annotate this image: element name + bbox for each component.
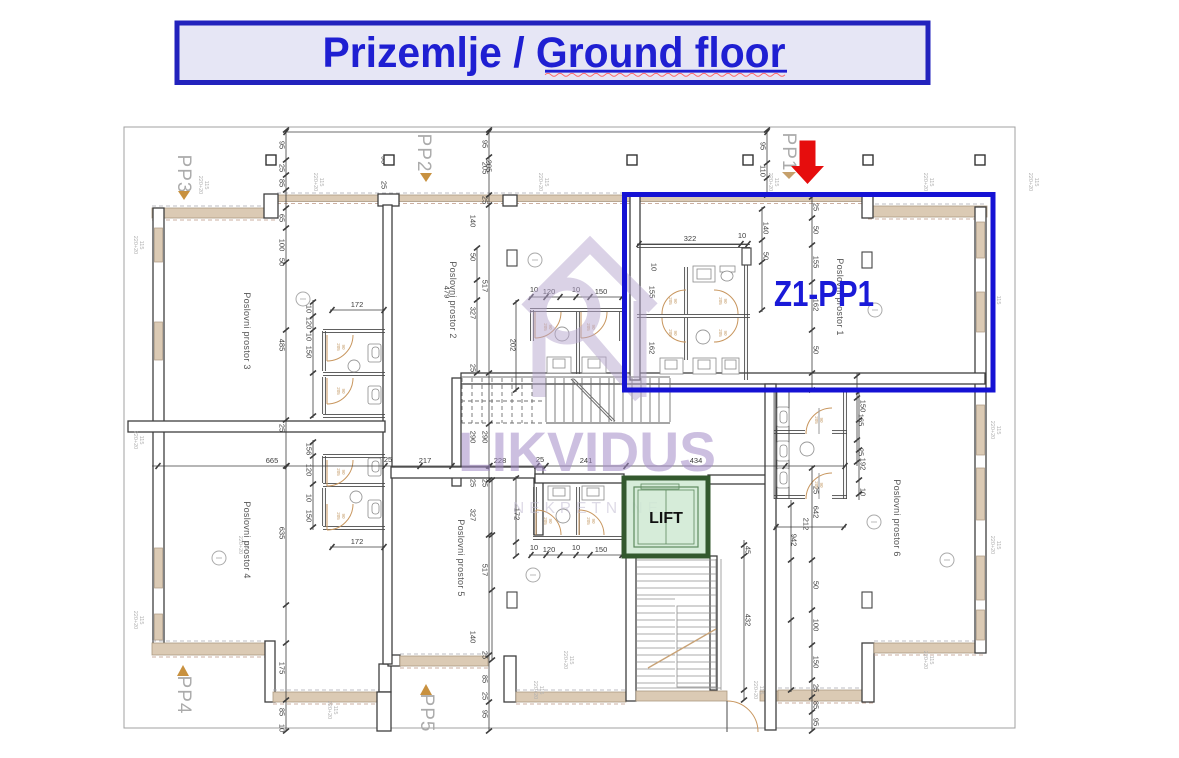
svg-text:635: 635 bbox=[278, 527, 287, 540]
svg-text:10: 10 bbox=[530, 543, 538, 552]
svg-text:Poslovni prostor 2: Poslovni prostor 2 bbox=[448, 261, 458, 338]
svg-text:25: 25 bbox=[384, 455, 392, 464]
svg-text:175: 175 bbox=[278, 662, 287, 675]
svg-text:205: 205 bbox=[336, 512, 341, 520]
svg-text:205: 205 bbox=[668, 297, 673, 305]
svg-text:50: 50 bbox=[812, 226, 821, 234]
svg-text:217: 217 bbox=[419, 456, 432, 465]
svg-text:172: 172 bbox=[351, 300, 364, 309]
svg-text:PP3: PP3 bbox=[173, 155, 194, 194]
svg-text:25: 25 bbox=[812, 684, 821, 692]
svg-text:25: 25 bbox=[481, 196, 490, 204]
svg-text:205: 205 bbox=[336, 343, 341, 351]
svg-text:642: 642 bbox=[812, 506, 821, 519]
svg-text:10: 10 bbox=[859, 488, 868, 496]
svg-text:Poslovni prostor 4: Poslovni prostor 4 bbox=[242, 501, 252, 578]
svg-text:140: 140 bbox=[469, 631, 478, 644]
svg-text:205: 205 bbox=[586, 517, 591, 525]
svg-text:85: 85 bbox=[481, 675, 490, 683]
svg-text:25: 25 bbox=[812, 203, 821, 211]
svg-text:205: 205 bbox=[336, 468, 341, 476]
svg-text:165: 165 bbox=[857, 414, 866, 427]
svg-text:220+20: 220+20 bbox=[752, 681, 758, 700]
svg-text:Z1-PP1: Z1-PP1 bbox=[774, 273, 874, 314]
svg-text:25: 25 bbox=[380, 181, 389, 189]
svg-text:50: 50 bbox=[278, 258, 287, 266]
svg-text:205: 205 bbox=[668, 329, 673, 337]
svg-text:LIFT: LIFT bbox=[649, 510, 683, 527]
svg-text:150: 150 bbox=[305, 346, 314, 359]
svg-text:162: 162 bbox=[648, 342, 657, 355]
svg-text:50: 50 bbox=[469, 253, 478, 261]
svg-text:10: 10 bbox=[278, 724, 287, 732]
svg-text:202: 202 bbox=[509, 339, 518, 352]
svg-text:220+20: 220+20 bbox=[537, 173, 543, 192]
svg-text:220+20: 220+20 bbox=[326, 701, 332, 720]
svg-text:10: 10 bbox=[305, 494, 314, 502]
svg-text:50: 50 bbox=[762, 252, 771, 260]
svg-text:665: 665 bbox=[266, 456, 279, 465]
svg-text:10: 10 bbox=[572, 543, 580, 552]
svg-text:120: 120 bbox=[543, 545, 556, 554]
svg-text:140: 140 bbox=[762, 222, 771, 235]
svg-text:100: 100 bbox=[812, 619, 821, 632]
svg-text:432: 432 bbox=[744, 614, 753, 627]
svg-text:220+20: 220+20 bbox=[922, 173, 928, 192]
svg-text:Poslovni prostor 6: Poslovni prostor 6 bbox=[892, 479, 902, 556]
svg-text:Poslovni prostor 5: Poslovni prostor 5 bbox=[456, 519, 466, 596]
svg-text:PP4: PP4 bbox=[173, 676, 194, 715]
svg-text:172: 172 bbox=[351, 537, 364, 546]
svg-text:85: 85 bbox=[278, 708, 287, 716]
svg-text:100: 100 bbox=[278, 239, 287, 252]
svg-text:220+20: 220+20 bbox=[312, 173, 318, 192]
svg-text:205: 205 bbox=[543, 517, 548, 525]
svg-text:220+20: 220+20 bbox=[1027, 173, 1033, 192]
svg-text:95: 95 bbox=[481, 710, 490, 718]
svg-text:150: 150 bbox=[859, 400, 868, 413]
svg-text:120: 120 bbox=[305, 317, 314, 330]
svg-text:85: 85 bbox=[812, 701, 821, 709]
svg-text:Poslovni prostor 3: Poslovni prostor 3 bbox=[242, 292, 252, 369]
svg-text:10: 10 bbox=[650, 263, 659, 271]
svg-text:85: 85 bbox=[278, 179, 287, 187]
svg-text:205: 205 bbox=[718, 329, 723, 337]
svg-text:220+20: 220+20 bbox=[989, 536, 995, 555]
svg-text:120: 120 bbox=[305, 464, 314, 477]
svg-text:25: 25 bbox=[469, 364, 478, 372]
svg-text:942: 942 bbox=[790, 534, 799, 547]
svg-text:45: 45 bbox=[744, 546, 753, 554]
svg-text:220+20: 220+20 bbox=[989, 421, 995, 440]
svg-text:150: 150 bbox=[595, 287, 608, 296]
svg-text:220+20: 220+20 bbox=[132, 236, 138, 255]
svg-text:212: 212 bbox=[802, 518, 811, 531]
svg-text:517: 517 bbox=[481, 280, 490, 293]
svg-text:220+20: 220+20 bbox=[922, 651, 928, 670]
svg-text:50: 50 bbox=[812, 581, 821, 589]
svg-text:517: 517 bbox=[481, 564, 490, 577]
svg-text:95: 95 bbox=[481, 140, 490, 148]
svg-text:205: 205 bbox=[718, 297, 723, 305]
svg-text:150: 150 bbox=[305, 510, 314, 523]
svg-text:220+20: 220+20 bbox=[562, 651, 568, 670]
svg-text:327: 327 bbox=[469, 307, 478, 320]
svg-text:25: 25 bbox=[481, 692, 490, 700]
svg-text:95: 95 bbox=[812, 718, 821, 726]
svg-text:95: 95 bbox=[278, 141, 287, 149]
svg-text:95: 95 bbox=[759, 142, 768, 150]
svg-text:150: 150 bbox=[595, 545, 608, 554]
svg-text:220+20: 220+20 bbox=[132, 431, 138, 450]
svg-text:LIKVIDUS: LIKVIDUS bbox=[458, 420, 716, 483]
svg-text:220+20: 220+20 bbox=[767, 173, 773, 192]
svg-text:110: 110 bbox=[759, 165, 768, 177]
svg-text:65: 65 bbox=[278, 214, 287, 222]
svg-text:25: 25 bbox=[481, 651, 490, 659]
svg-text:150: 150 bbox=[812, 656, 821, 669]
svg-text:205: 205 bbox=[814, 416, 819, 424]
svg-text:10: 10 bbox=[305, 305, 314, 313]
svg-text:25: 25 bbox=[857, 448, 866, 456]
svg-text:140: 140 bbox=[469, 215, 478, 228]
svg-text:220+20: 220+20 bbox=[132, 611, 138, 630]
svg-text:327: 327 bbox=[469, 509, 478, 522]
svg-text:220+20: 220+20 bbox=[197, 176, 203, 195]
svg-text:192: 192 bbox=[859, 458, 868, 471]
svg-text:156: 156 bbox=[305, 443, 314, 456]
svg-text:PP5: PP5 bbox=[416, 694, 437, 733]
svg-text:485: 485 bbox=[278, 339, 287, 352]
svg-text:205: 205 bbox=[336, 387, 341, 395]
svg-text:PP2: PP2 bbox=[413, 134, 434, 173]
svg-text:205: 205 bbox=[485, 160, 494, 173]
svg-text:25: 25 bbox=[278, 424, 287, 432]
svg-text:50: 50 bbox=[812, 346, 821, 354]
svg-text:25: 25 bbox=[278, 164, 287, 172]
svg-text:10: 10 bbox=[305, 333, 314, 341]
svg-text:10: 10 bbox=[738, 231, 746, 240]
svg-text:220+20: 220+20 bbox=[532, 681, 538, 700]
svg-text:205: 205 bbox=[814, 481, 819, 489]
svg-text:155: 155 bbox=[812, 256, 821, 269]
svg-text:PP1: PP1 bbox=[778, 133, 799, 172]
svg-text:322: 322 bbox=[684, 234, 697, 243]
